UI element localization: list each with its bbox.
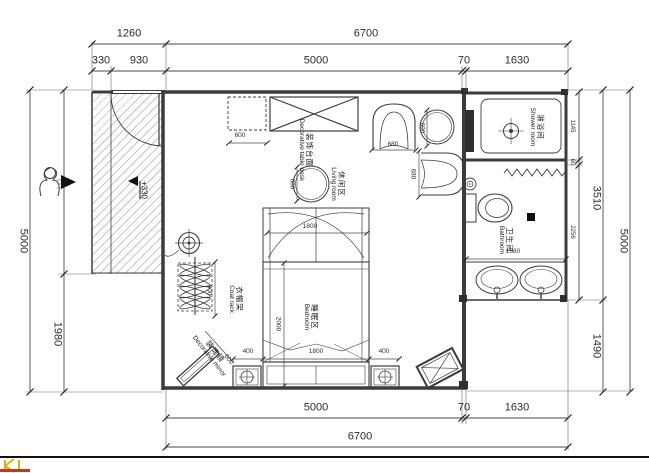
vanity-double-sink xyxy=(476,266,562,299)
dim-canopy-1800: 1800 xyxy=(303,224,317,231)
shower-door-panel xyxy=(465,110,474,152)
top-cabinet-dashed xyxy=(228,97,266,130)
dim-top-5000: 5000 xyxy=(304,56,328,67)
dim-top-330: 330 xyxy=(92,56,110,67)
dim-chair-680-w: 680 xyxy=(388,142,399,149)
dim-bed-1800: 1800 xyxy=(309,349,323,356)
dim-top-930: 930 xyxy=(130,56,148,67)
dim-side-table-600: 600 xyxy=(418,123,425,134)
corner-decor-crossed xyxy=(417,348,464,388)
decorative-counter-crossed xyxy=(270,97,358,131)
dim-coat-900: 900 xyxy=(205,285,212,296)
room-label-bathroom: 卫生间 Bathroom xyxy=(496,226,514,254)
dim-top-1630: 1630 xyxy=(505,56,529,67)
dim-bottom-1630: 1630 xyxy=(505,403,529,414)
room-label-shower: 淋浴间 Shower room xyxy=(527,108,545,147)
dim-top-6700: 6700 xyxy=(354,29,378,40)
dim-right-60: 60 xyxy=(569,159,575,166)
dim-bottom-6700: 6700 xyxy=(348,432,372,443)
dim-bed-400-left: 400 xyxy=(243,349,254,356)
bottom-separator-line xyxy=(0,456,649,458)
dim-top-70: 70 xyxy=(458,56,470,67)
label-decorative-table: 装饰台面 Decorative table desk xyxy=(296,119,314,182)
dim-right-2256: 2256 xyxy=(569,225,575,238)
toilet xyxy=(465,194,512,222)
dim-right-5000: 5000 xyxy=(618,229,629,253)
entry-person-icon xyxy=(40,168,76,197)
shower-tray xyxy=(481,99,561,153)
floor-plan-canvas: 1260 6700 330 930 5000 70 1630 5000 70 1… xyxy=(0,0,649,473)
dim-right-1490: 1490 xyxy=(591,334,602,358)
bed-canopy xyxy=(263,208,369,262)
floor-drain xyxy=(527,213,535,221)
dim-bed-2000: 2000 xyxy=(274,317,281,331)
entry-direction-arrow xyxy=(61,175,76,189)
armchair-right xyxy=(421,153,465,195)
dim-bottom-5000: 5000 xyxy=(304,403,328,414)
dim-right-3510: 3510 xyxy=(591,186,602,210)
dim-cabinet-600: 600 xyxy=(235,133,246,140)
room-label-living: 休闲区 Living room xyxy=(328,167,346,201)
dim-chair-680-h: 680 xyxy=(409,169,416,180)
nightstand-left xyxy=(233,366,261,388)
room-label-bedroom: 睡眠区 Bedroom xyxy=(301,304,319,330)
level-marker: +330 xyxy=(140,181,149,199)
dim-bed-400-right: 400 xyxy=(379,349,390,356)
dim-left-5000: 5000 xyxy=(18,229,29,253)
dim-left-1980: 1980 xyxy=(52,322,63,346)
level-arrow xyxy=(128,176,138,186)
ceiling-symbol xyxy=(165,229,203,257)
partial-red-mark xyxy=(0,469,30,472)
shower-curtain-zigzag xyxy=(504,169,565,176)
nightstand-right xyxy=(371,366,399,388)
label-coat-rack: 衣帽架 Coat rack xyxy=(226,285,244,313)
entry-door-arc xyxy=(111,94,163,146)
dim-bottom-70: 70 xyxy=(458,403,470,414)
dim-top-1260: 1260 xyxy=(117,29,141,40)
dim-table-600: 600 xyxy=(288,179,295,190)
dim-right-1145: 1145 xyxy=(569,120,575,133)
